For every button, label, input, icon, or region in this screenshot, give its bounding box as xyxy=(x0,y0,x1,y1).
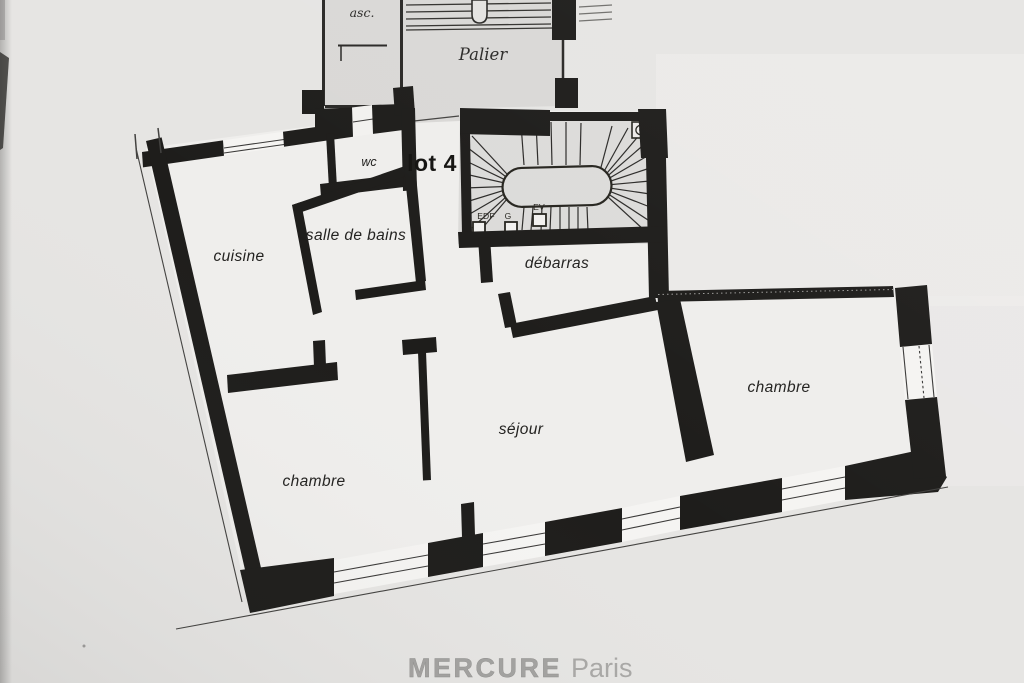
photo-vignette xyxy=(0,0,1024,683)
floor-plan-photo: EDF G EV xyxy=(0,0,1024,683)
floor-plan: EDF G EV xyxy=(0,0,1024,683)
